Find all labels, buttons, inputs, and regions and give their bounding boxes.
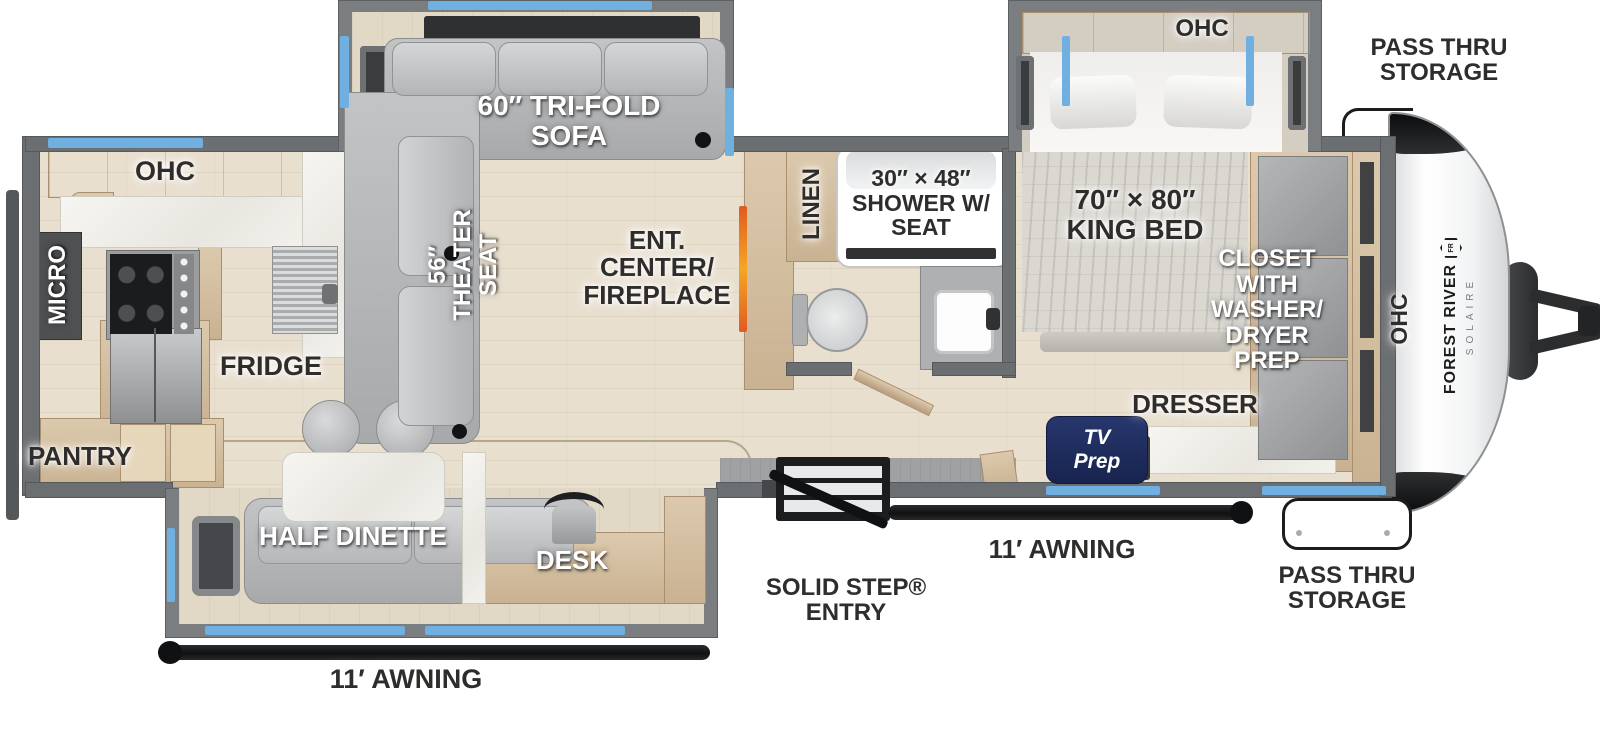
front-ohc-slot-3 bbox=[1360, 350, 1374, 432]
brand-forest: FOREST RIVER bbox=[1442, 264, 1460, 394]
kitchen-ohc-cabinet bbox=[48, 150, 342, 198]
theater-cupholder-2 bbox=[452, 424, 467, 439]
theater-cushion-2 bbox=[398, 286, 474, 426]
stove-knob-panel bbox=[174, 254, 194, 334]
pantry-door-1 bbox=[120, 424, 166, 482]
solid-step-entry-label: SOLID STEP® ENTRY bbox=[754, 568, 938, 632]
passthru-screw-1 bbox=[1296, 530, 1302, 536]
bath-faucet bbox=[986, 308, 1000, 330]
dinette-desk-divider bbox=[462, 452, 486, 604]
awning-left-label: 11′ AWNING bbox=[324, 662, 488, 696]
bed-slide-accent-right bbox=[1246, 36, 1254, 106]
kitchen-faucet bbox=[322, 284, 338, 304]
bed-slide-accent-left bbox=[1062, 36, 1070, 106]
awning-right-endcap bbox=[1230, 501, 1253, 524]
fridge bbox=[110, 328, 202, 424]
rear-bumper bbox=[6, 190, 19, 520]
sofa-cushion-3 bbox=[604, 42, 708, 96]
awning-right-label: 11′ AWNING bbox=[986, 534, 1138, 566]
dinette-window-bottom-1 bbox=[205, 626, 405, 635]
pantry-door-2 bbox=[170, 424, 216, 482]
bed-slide-window-right bbox=[1288, 56, 1306, 130]
brand-line: FOREST RIVER FR bbox=[1440, 238, 1462, 394]
wall-bottom-pantry bbox=[25, 482, 173, 498]
sofa-slide-window-right bbox=[725, 88, 734, 156]
bed-foot-bench bbox=[1040, 332, 1232, 352]
king-bed bbox=[1022, 148, 1248, 332]
brand-block: FOREST RIVER FR SOLAIRE bbox=[1410, 216, 1506, 416]
shower-pan bbox=[846, 151, 996, 189]
wall-bottom-mid bbox=[716, 482, 764, 498]
microwave bbox=[38, 232, 82, 340]
shower-door bbox=[846, 248, 996, 259]
awning-left-endcap bbox=[158, 641, 182, 664]
sofa-cushion-2 bbox=[498, 42, 602, 96]
bath-sink bbox=[934, 290, 994, 354]
toilet-bowl bbox=[806, 288, 868, 352]
tv-prep-label: TV Prep bbox=[1074, 426, 1121, 474]
brand-solaire: SOLAIRE bbox=[1465, 277, 1476, 355]
desk-return bbox=[664, 496, 706, 604]
desk-chair-seat bbox=[552, 506, 596, 544]
step-tread-1 bbox=[784, 466, 882, 478]
wall-front-stub bbox=[1380, 136, 1396, 497]
linen-closet bbox=[786, 148, 840, 262]
front-ohc-slot-2 bbox=[1360, 256, 1374, 338]
closet-door-2 bbox=[1258, 258, 1348, 358]
dinette-table bbox=[282, 452, 445, 522]
bed-slide-window-left bbox=[1016, 56, 1034, 130]
wall-top-bath bbox=[728, 136, 1014, 152]
kitchen-counter-top bbox=[60, 196, 308, 248]
wall-bath-bottom-left bbox=[786, 362, 852, 376]
rear-wall bbox=[22, 136, 40, 496]
sofa-cushion-1 bbox=[392, 42, 496, 96]
tv-prep-badge: TV Prep bbox=[1046, 416, 1148, 484]
closet-door-3 bbox=[1258, 360, 1348, 460]
theater-cupholder-1 bbox=[444, 246, 459, 261]
pillow-right bbox=[1163, 74, 1253, 129]
dinette-window-left bbox=[167, 528, 175, 602]
pass-thru-bottom-label: PASS THRU STORAGE bbox=[1256, 556, 1438, 620]
forest-river-logo: FR bbox=[1440, 238, 1462, 258]
wall-bath-bottom-right bbox=[932, 362, 1016, 376]
dinette-stool-1 bbox=[302, 400, 360, 458]
dinette-side-window bbox=[192, 516, 240, 596]
front-ohc-slot-1 bbox=[1360, 162, 1374, 244]
rv-floorplan: TV Prep OHC FOREST RIVER FR SOLAIRE bbox=[0, 0, 1600, 747]
awning-bar-left bbox=[170, 645, 710, 660]
passthru-door-outline-bottom bbox=[1282, 498, 1412, 550]
hitch-coupler bbox=[1578, 306, 1600, 336]
passthru-window-bottom-2 bbox=[1262, 486, 1386, 495]
sofa-slide-window-left bbox=[340, 36, 349, 108]
pass-thru-top-label: PASS THRU STORAGE bbox=[1348, 28, 1530, 92]
theater-cushion-1 bbox=[398, 136, 474, 276]
dinette-window-bottom-2 bbox=[425, 626, 625, 635]
fireplace bbox=[739, 206, 747, 332]
closet-door-1 bbox=[1258, 156, 1348, 256]
passthru-screw-2 bbox=[1384, 530, 1390, 536]
stove-cooktop bbox=[110, 254, 172, 334]
cap-trim-top bbox=[1390, 114, 1508, 154]
sofa-slide-window-top bbox=[428, 1, 652, 10]
fridge-door-split bbox=[154, 328, 156, 422]
sofa-cupholder bbox=[695, 132, 711, 148]
kitchen-window bbox=[48, 138, 203, 148]
awning-bar-right bbox=[888, 505, 1240, 520]
bedroom-window-bottom-1 bbox=[1046, 486, 1160, 495]
wall-bath-right bbox=[1002, 148, 1016, 378]
